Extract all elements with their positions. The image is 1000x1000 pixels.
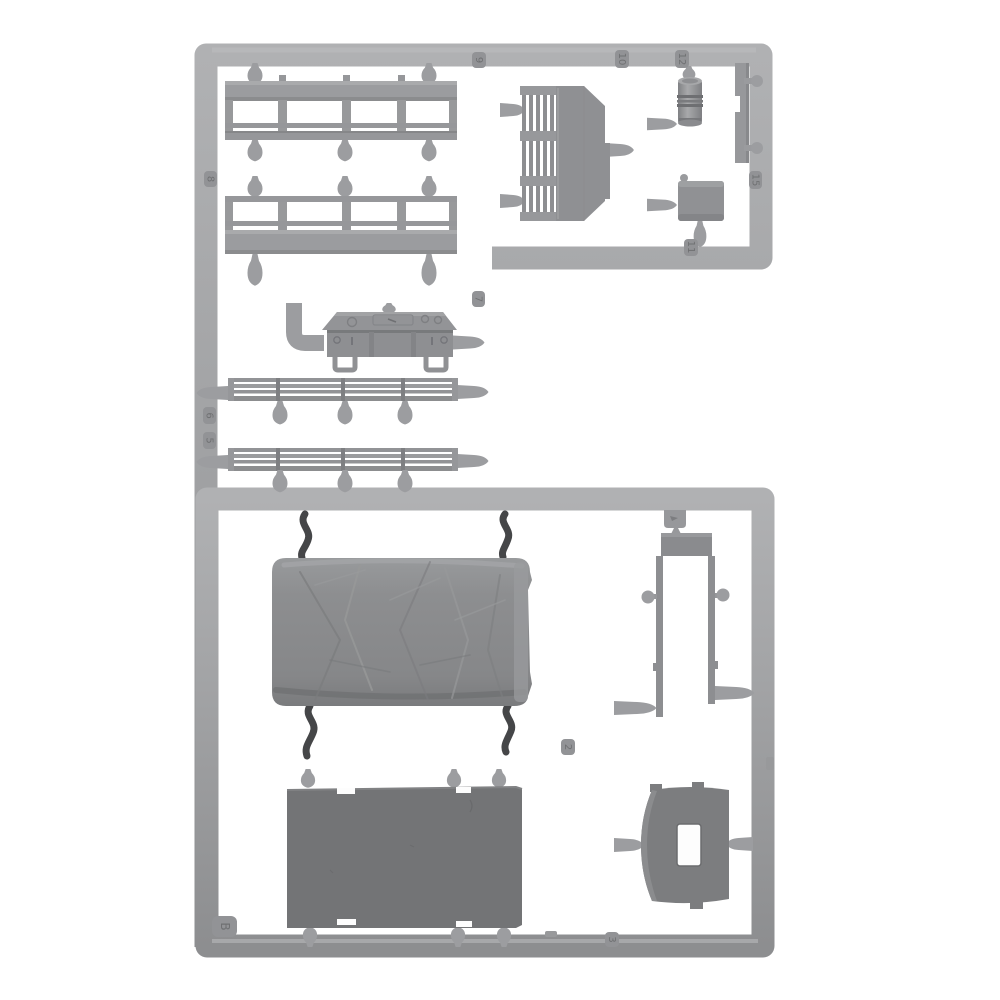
part-tilt-rail-upper [197, 378, 489, 425]
panel-slot [337, 919, 356, 925]
panel-slot [456, 921, 472, 927]
tool-box-foot [335, 357, 355, 370]
gate-knob [751, 142, 763, 154]
part-tool-box [294, 303, 485, 370]
part-bed-side-upper [225, 63, 457, 161]
tag-number: 2 [562, 744, 573, 750]
gate-knob [717, 589, 730, 602]
part-number-tag: 15 [749, 171, 762, 189]
panel-slot [337, 788, 355, 794]
tag-number: 15 [750, 174, 761, 187]
part-number-tag: 12 [675, 50, 689, 68]
bracket-leg-left [656, 556, 663, 717]
sprue-letter-tag: B [212, 916, 237, 937]
part-radiator [500, 86, 634, 221]
panel-slot [456, 787, 471, 793]
cab-window-hole [677, 824, 701, 866]
part-tilt-rail-lower [197, 448, 489, 492]
runner-tab [766, 757, 774, 770]
radiator-fins [522, 86, 554, 221]
tarp-edge-highlight [514, 562, 528, 702]
part-floor-panel [287, 769, 522, 947]
part-bed-side-lower [225, 176, 457, 286]
part-number-tag: 2 [561, 739, 575, 755]
part-air-cleaner [647, 66, 703, 130]
tag-number: 5 [204, 437, 215, 443]
part-number-tag: 6 [203, 407, 216, 424]
tag-number: 7 [473, 296, 484, 302]
tag-number: 3 [606, 936, 617, 942]
tool-box-foot [426, 357, 446, 370]
sprue-photo: 9 10 12 15 11 8 7 6 [0, 0, 1000, 1000]
part-number-tag: 3 [605, 932, 619, 947]
bracket-leg-right [708, 556, 715, 704]
tag-letter: B [218, 922, 232, 930]
part-frame-bracket [614, 510, 754, 717]
part-number-tag: 10 [615, 50, 629, 68]
part-number-tag: 11 [684, 239, 698, 256]
tool-box-body [327, 330, 453, 357]
runner-tab [545, 931, 557, 937]
tag-number: 10 [616, 53, 627, 66]
part-number-tag: 5 [203, 432, 216, 449]
box-knob [680, 174, 688, 182]
tag-number: 8 [205, 176, 216, 182]
part-canvas-tilt [272, 514, 532, 756]
part-number-tag: 9 [472, 52, 486, 68]
gate-knob [751, 75, 763, 87]
tag-number: 6 [204, 412, 215, 418]
tag-number: 9 [473, 57, 484, 63]
tag-number: 12 [676, 53, 687, 66]
part-cab-rear-panel [614, 782, 753, 909]
floor-panel-body [287, 787, 522, 928]
feeder-elbow [294, 303, 324, 343]
part-storage-box [647, 174, 724, 247]
tag-number: 11 [685, 241, 696, 254]
part-number-tag: 8 [204, 171, 217, 187]
photo-canvas: 9 10 12 15 11 8 7 6 [0, 0, 1000, 1000]
gate-knob [642, 591, 655, 604]
tarp-body [272, 558, 532, 706]
part-number-tag: 7 [472, 291, 485, 307]
